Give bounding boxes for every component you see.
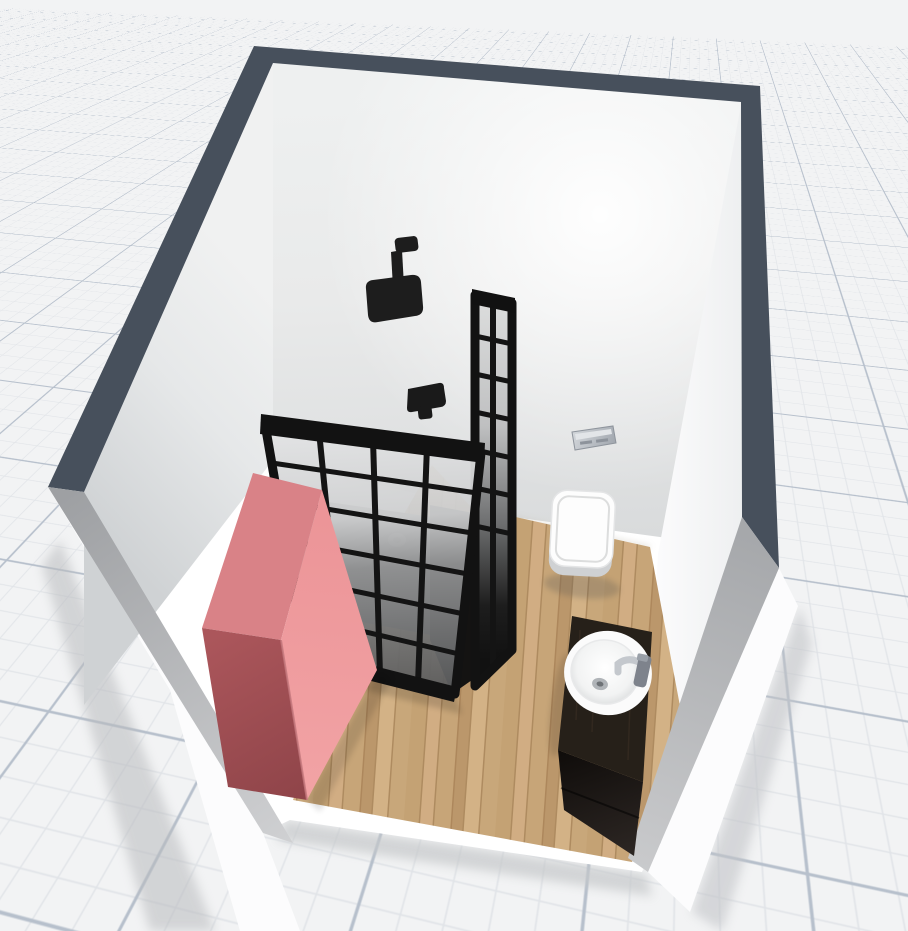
toilet[interactable]: [543, 489, 621, 601]
valve-knob: [417, 405, 432, 420]
shower-head-plate: [366, 275, 423, 322]
planner-3d-stage: [0, 0, 908, 931]
shower-arm-flange: [394, 236, 419, 254]
room-3d-canvas[interactable]: [0, 0, 908, 931]
